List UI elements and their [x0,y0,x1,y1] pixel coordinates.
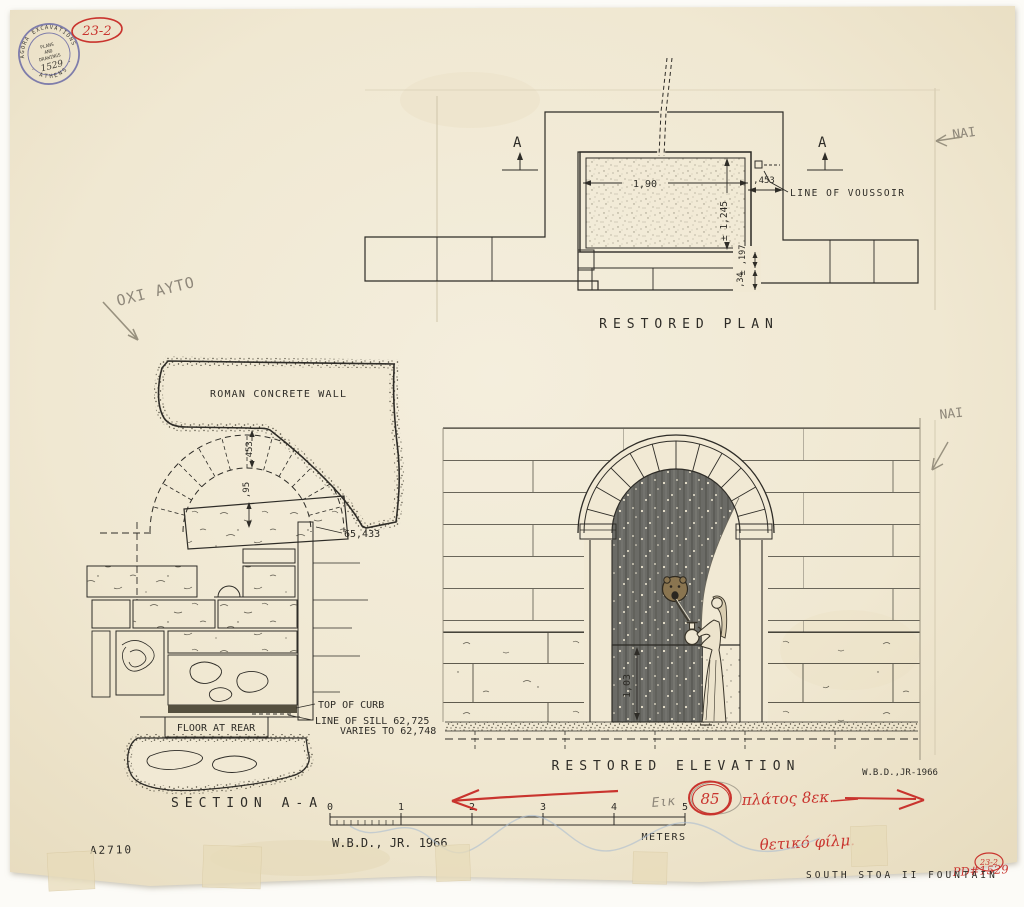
scale-tick-3: 3 [540,802,546,813]
svg-text:,34: ,34 [736,272,746,287]
scanned-drawing-sheet: 1,90 ± 1,245 ,453 ± ,197 ,34 LINE OF VOU… [0,0,1024,907]
elevation-signature: W.B.D.,JR-1966 [862,768,938,778]
voussoir-label: LINE OF VOUSSOIR [790,188,906,199]
negative-number: A2710 [90,843,133,857]
svg-text:A: A [513,135,522,151]
elevation-mark: 65,433 [344,529,380,540]
concrete-wall-label: ROMAN CONCRETE WALL [210,389,347,400]
width-note: πλάτος 8εκ. [741,788,835,809]
scale-tick-5: 5 [682,802,688,813]
scale-unit: METERS [641,832,686,843]
code-bottom-right: 23-2 [979,858,998,867]
curb [168,705,297,713]
svg-text:1,90: 1,90 [633,179,657,190]
svg-text:,95: ,95 [242,482,252,498]
elevation-drawing: 1,03 [443,418,938,778]
subject-note: SOUTH STOA II FOUNTAIN [806,870,998,881]
svg-text:,453: ,453 [245,441,255,463]
scale-tick-0: 0 [327,802,333,813]
svg-text:1,03: 1,03 [622,674,633,698]
scale-tick-4: 4 [611,802,617,813]
code-top-left: 23-2 [81,24,111,39]
svg-text:± 1,245: ± 1,245 [719,201,730,241]
svg-text:± ,197: ± ,197 [738,245,748,276]
fig-abbrev-note: Εικ [651,794,676,811]
yes-note-lower: NAI [939,406,964,423]
plan-title: RESTORED PLAN [599,317,779,332]
svg-text:A: A [818,135,827,151]
floor-label: FLOOR AT REAR [177,723,256,734]
svg-text:,453: ,453 [753,176,775,186]
elevation-title: RESTORED ELEVATION [552,759,801,774]
scale-tick-1: 1 [398,802,404,813]
figure-number: 85 [700,790,719,808]
section-title: SECTION A-A [171,796,323,811]
curb-label: TOP OF CURB [318,700,384,711]
sill-label-line2: VARIES TO 62,748 [340,726,436,737]
